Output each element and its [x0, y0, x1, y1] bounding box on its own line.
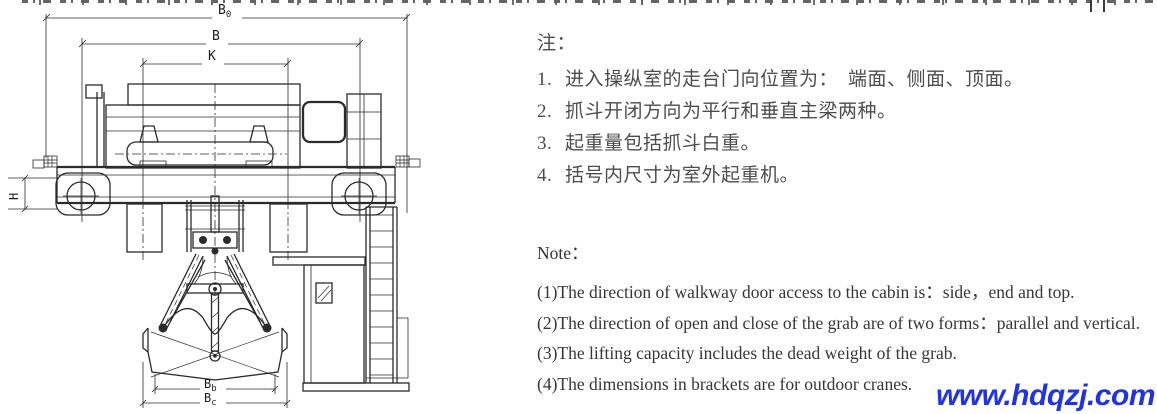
note-text: 起重量包括抓斗白重。: [565, 128, 760, 160]
note-number: 2.: [537, 96, 565, 128]
note-cn-item: 3. 起重量包括抓斗白重。: [537, 128, 1137, 160]
notes-english: Note： (1)The direction of walkway door a…: [537, 240, 1152, 399]
cable-drum: [115, 126, 287, 165]
dimension-b0: B0: [43, 3, 410, 213]
note-text: 进入操纵室的走台门向位置为： 端面、侧面、顶面。: [565, 64, 1024, 96]
watermark-url: www.hdqzj.com: [936, 379, 1155, 413]
end-truck-left: [56, 173, 110, 215]
note-number: 1.: [537, 64, 565, 96]
note-number: 3.: [537, 128, 565, 160]
dimension-label-b0: B0: [218, 3, 231, 20]
dimension-b: B: [79, 29, 363, 222]
note-cn-item: 1. 进入操纵室的走台门向位置为： 端面、侧面、顶面。: [537, 64, 1137, 96]
note-en-item: (2)The direction of open and close of th…: [537, 308, 1152, 339]
buffer-right: [396, 156, 420, 167]
dimension-label-h: H: [7, 193, 21, 200]
counterweight-left: [127, 204, 162, 252]
cropped-text-fragment: [1090, 0, 1092, 12]
cropped-text-fragment: [1103, 0, 1105, 12]
note-en-item: (3)The lifting capacity includes the dea…: [537, 338, 1152, 369]
note-number: 4.: [537, 160, 565, 192]
notes-en-title: Note：: [537, 240, 1152, 265]
notes-chinese: 注： 1. 进入操纵室的走台门向位置为： 端面、侧面、顶面。 2. 抓斗开闭方向…: [537, 28, 1137, 192]
crane-drawing: B0 B K H: [0, 0, 520, 414]
trolley-end-frame: [347, 94, 381, 168]
notes-cn-title: 注：: [537, 28, 1137, 55]
note-en-item: (1)The direction of walkway door access …: [537, 277, 1152, 308]
dimension-label-b: B: [212, 29, 220, 44]
note-text: 抓斗开闭方向为平行和垂直主梁两种。: [565, 96, 897, 128]
counterweight-right: [270, 204, 307, 252]
bridge-girder: [57, 161, 395, 203]
scanned-crane-datasheet: { "diagram": { "title_hint": "grab overh…: [0, 0, 1157, 414]
dimension-label-k: K: [208, 49, 216, 64]
cabin: [273, 257, 409, 391]
dimension-h: H: [7, 175, 57, 212]
note-text: 括号内尺寸为室外起重机。: [565, 160, 799, 192]
dimension-bb: Bb: [152, 374, 278, 394]
note-cn-item: 4. 括号内尺寸为室外起重机。: [537, 160, 1137, 192]
ladder: [366, 207, 408, 383]
cabin-window-icon: [316, 283, 332, 303]
note-cn-item: 2. 抓斗开闭方向为平行和垂直主梁两种。: [537, 96, 1137, 128]
grab-bucket: [143, 254, 287, 380]
trolley: [86, 84, 381, 168]
end-truck-right: [332, 173, 386, 215]
buffer-left: [33, 156, 57, 168]
hoist-motor: [303, 102, 345, 142]
